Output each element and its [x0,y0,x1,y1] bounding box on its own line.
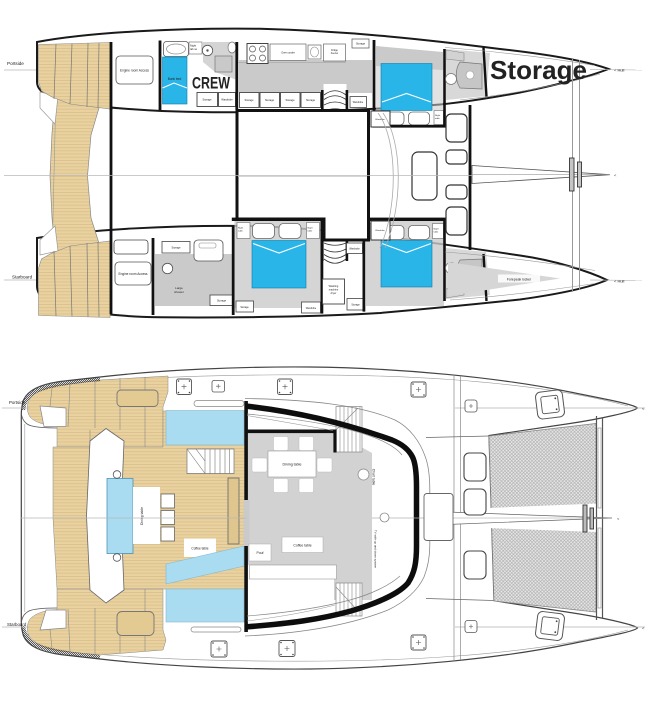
svg-text:Storage: Storage [356,42,366,46]
svg-text:table: table [434,231,440,234]
svg-text:tab se: tab se [190,47,198,51]
svg-text:< Hull: < Hull [614,68,624,73]
svg-text:dryer: dryer [331,292,337,295]
svg-text:Oven under: Oven under [281,51,295,55]
svg-text:Night: Night [435,114,440,117]
svg-text:Starboard: Starboard [12,275,33,280]
svg-text:Storage: Storage [240,306,249,309]
svg-text:Engine room Access: Engine room Access [118,272,147,276]
svg-text:Portside: Portside [7,61,24,66]
svg-text:CREW: CREW [192,74,231,93]
svg-text:Wardrobe: Wardrobe [306,307,317,310]
svg-text:shower: shower [174,290,184,294]
svg-text:Pouf: Pouf [257,551,264,555]
svg-text:Dining table: Dining table [140,507,144,525]
svg-text:Starboard: Starboard [7,622,27,627]
svg-text:TV with up and down system: TV with up and down system [374,530,378,569]
svg-text:Chart table: Chart table [372,469,376,486]
svg-text:Storage: Storage [171,246,181,250]
svg-text:Storage: Storage [244,98,254,102]
svg-text:Storage: Storage [265,98,275,102]
svg-text:freezer: freezer [331,52,339,55]
svg-text:Engine room Access: Engine room Access [120,69,149,73]
svg-text:Portside: Portside [9,400,26,405]
svg-text:Storage: Storage [306,98,316,102]
svg-text:Dining table: Dining table [283,463,302,467]
svg-text:Coffee table: Coffee table [293,544,311,548]
svg-text:Storage: Storage [217,299,227,303]
svg-text:table: table [308,230,314,233]
svg-text:Night: Night [190,44,196,48]
svg-text:Wardrobe: Wardrobe [353,101,364,104]
svg-text:Wardrobe: Wardrobe [375,118,385,121]
svg-text:Coffee table: Coffee table [191,547,208,551]
svg-text:Storage: Storage [351,304,360,307]
svg-text:Storage: Storage [285,98,295,102]
svg-text:Wardrobe: Wardrobe [349,248,360,251]
svg-text:Bunk bed: Bunk bed [168,77,182,81]
svg-text:Night: Night [434,228,439,231]
svg-text:Forepeak locker: Forepeak locker [507,278,532,282]
svg-text:table: table [238,230,244,233]
svg-text:Storage: Storage [202,98,212,102]
svg-text:Night: Night [308,227,313,230]
svg-text:Wardrobe: Wardrobe [221,98,233,102]
svg-text:Storage: Storage [490,55,587,85]
svg-text:Night: Night [238,227,243,230]
svg-text:< Hull: < Hull [614,279,624,284]
svg-text:table: table [435,117,441,120]
svg-text:Wardrobe: Wardrobe [375,229,385,232]
